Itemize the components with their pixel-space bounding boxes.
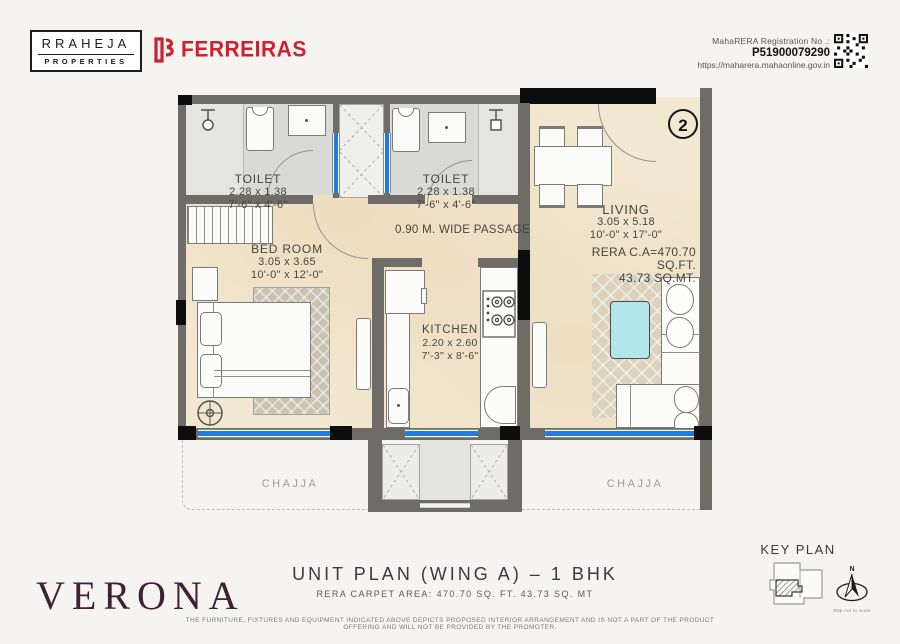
blanket-line [214, 370, 310, 371]
north-compass: N Map not to scale [832, 566, 872, 613]
brand-subtitle: PROPERTIES [32, 57, 140, 66]
duct-vent-right [383, 133, 391, 193]
wall-top-black [520, 88, 656, 104]
compass-n-label: N [832, 566, 872, 573]
floor-plan-poster: RRAHEJA PROPERTIES FERREIRAS MahaRERA Re… [0, 0, 900, 644]
plan-title: UNIT PLAN (WING A) – 1 BHK [280, 564, 630, 585]
dining-table [534, 146, 612, 186]
unit-number-badge: 2 [668, 109, 698, 139]
rera-number: P51900079290 [570, 47, 830, 59]
shower-icon [486, 106, 506, 136]
wall-kitchen-top-right [478, 258, 518, 267]
ferreiras-logo: FERREIRAS [152, 36, 307, 64]
column-block [330, 426, 352, 440]
bedroom-label: BED ROOM 3.05 x 3.65 10'-0" x 12'-0" [232, 243, 342, 282]
column-block [694, 426, 712, 440]
wall-right [700, 88, 712, 510]
compass-note: Map not to scale [832, 608, 872, 613]
sliding-door-panel [356, 318, 371, 390]
lift-cab [420, 438, 470, 500]
column-block [500, 426, 520, 440]
pillow [200, 354, 222, 388]
fridge [385, 270, 425, 314]
kitchen-window [405, 429, 478, 438]
project-logo: VERONA [36, 572, 245, 619]
keyplan-label: KEY PLAN [758, 542, 838, 557]
shower-icon [198, 106, 218, 136]
sofa-line [630, 384, 631, 428]
chajja-left-label: CHAJJA [240, 478, 340, 490]
duct-vent-left [332, 133, 340, 193]
keyplan-drawing [758, 560, 836, 612]
rera-registration-block: MahaRERA Registration No .: P51900079290… [570, 36, 830, 70]
north-compass-icon [833, 573, 871, 603]
wall-left [178, 95, 186, 440]
wall-top [178, 95, 525, 104]
sofa-cushion [666, 284, 694, 315]
brand-divider [38, 54, 134, 55]
coffee-table [610, 301, 650, 359]
blanket-line [214, 376, 310, 377]
plan-subtitle: RERA CARPET AREA: 470.70 SQ. FT. 43.73 S… [280, 589, 630, 599]
basin-drain [445, 126, 448, 129]
sofa-line [661, 352, 700, 353]
column-block [178, 95, 192, 105]
column-block [178, 426, 196, 440]
column-block [176, 300, 186, 325]
fridge-handle [421, 288, 427, 304]
wall-kitchen-right-black [518, 250, 530, 320]
sink-drain [397, 404, 400, 407]
shaft-x-left [382, 444, 420, 500]
pillow [200, 312, 222, 346]
duct-x-mark [339, 104, 384, 198]
kitchen-wash-basin [484, 386, 516, 424]
rera-url: https://maharera.mahaonline.gov.in [570, 60, 830, 70]
kitchen-label: KITCHEN 2.20 x 2.60 7'-3" x 8'-6" [408, 324, 492, 363]
rera-label: MahaRERA Registration No .: [570, 36, 830, 46]
basin-drain [305, 119, 308, 122]
living-label: LIVING 3.05 x 5.18 10'-0" x 17'-0" [572, 203, 680, 242]
wall-kitchen-left [372, 258, 384, 435]
wall-kitchen-top-left [372, 258, 422, 267]
ferreiras-wordmark: FERREIRAS [181, 37, 307, 62]
disclaimer-text: THE FURNITURE, FIXTURES AND EQUIPMENT IN… [180, 617, 720, 631]
dining-chair [539, 184, 565, 208]
shaft-x-right [470, 444, 508, 500]
living-window [545, 429, 694, 438]
qr-code [834, 34, 868, 68]
raheja-logo: RRAHEJA PROPERTIES [30, 30, 142, 72]
toilet2-label: TOILET 2.28 x 1.38 7'-6" x 4'-6" [402, 173, 490, 212]
ceiling-fan-icon [196, 399, 224, 427]
bedroom-window [198, 429, 330, 438]
chajja-right-label: CHAJJA [585, 478, 685, 490]
brand-name: RRAHEJA [32, 32, 140, 51]
lift-door [420, 503, 470, 508]
bedside-table [192, 267, 218, 301]
toilet1-label: TOILET 2.28 x 1.38 7'-6" x 4'-6" [214, 173, 302, 212]
rera-area-label: RERA C.A=470.70 SQ.FT. 43.73 SQ.MT. [556, 246, 696, 285]
passage-label: 0.90 M. WIDE PASSAGE [385, 224, 540, 237]
ferreiras-icon [152, 36, 176, 64]
sliding-door-panel [532, 322, 547, 388]
